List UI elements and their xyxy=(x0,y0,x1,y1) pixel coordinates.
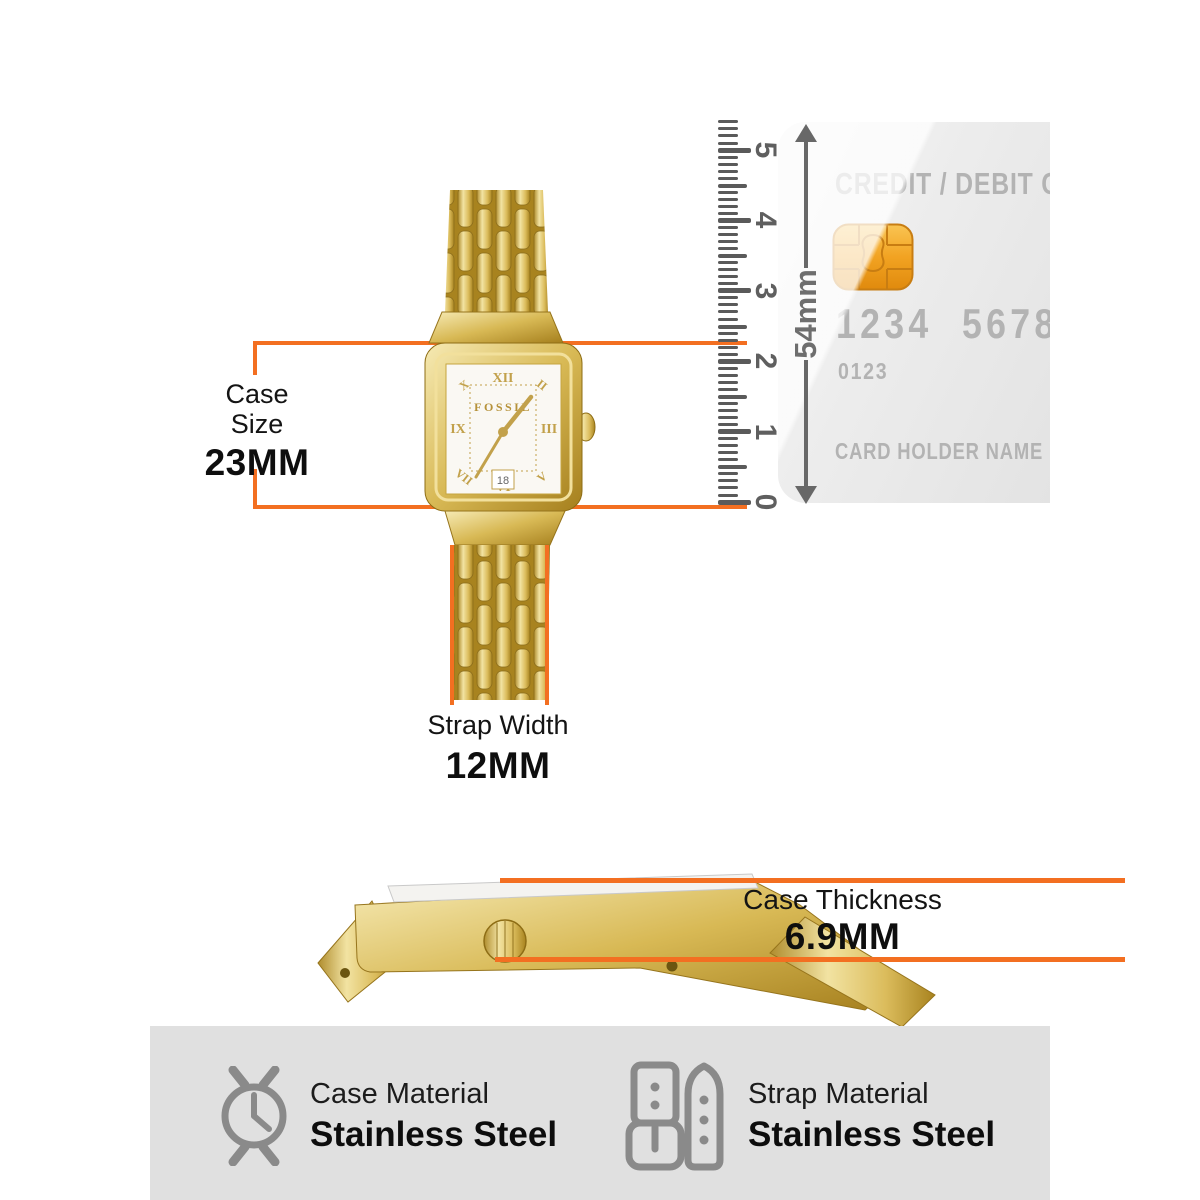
ruler-number: 4 xyxy=(749,203,781,237)
ruler-tick xyxy=(718,494,738,497)
case-size-annotation: Case Size 23MM xyxy=(167,379,347,484)
case-thickness-value: 6.9MM xyxy=(700,916,985,958)
ruler-tick xyxy=(718,170,738,173)
ruler-tick xyxy=(718,268,738,271)
end-link-top xyxy=(429,312,563,343)
strap-width-right-line xyxy=(545,545,549,705)
date-value: 18 xyxy=(497,475,509,487)
case-thickness-top-line xyxy=(500,878,1125,883)
strap-width-label: Strap Width xyxy=(398,710,598,740)
ruler-tick xyxy=(718,423,738,426)
ruler-tick xyxy=(718,288,751,293)
ruler-number: 3 xyxy=(749,274,781,308)
ruler-tick xyxy=(718,310,738,313)
case-material-text: Case Material Stainless Steel xyxy=(310,1078,557,1155)
arrow-head-down xyxy=(795,486,817,504)
ruler-tick xyxy=(718,395,747,399)
ruler-tick xyxy=(718,332,738,335)
ruler-tick xyxy=(718,303,738,306)
ruler-number: 1 xyxy=(749,415,781,449)
card-small-number: 0123 xyxy=(838,358,888,385)
ruler-tick xyxy=(718,416,738,419)
arrow-line-upper xyxy=(804,140,808,268)
ruler-tick xyxy=(718,205,738,208)
ruler-tick xyxy=(718,367,738,370)
case-size-bracket-upper xyxy=(253,341,257,375)
bracelet-bottom xyxy=(450,545,550,700)
ruler-tick xyxy=(718,233,738,236)
strap-width-value: 12MM xyxy=(398,745,598,787)
ruler-tick xyxy=(718,318,738,321)
ruler-tick xyxy=(718,353,738,356)
case-thickness-label: Case Thickness xyxy=(700,884,985,915)
strap-icon xyxy=(622,1060,734,1172)
strap-width-annotation: Strap Width 12MM xyxy=(398,710,598,787)
ruler-tick xyxy=(718,142,738,145)
ruler-tick xyxy=(718,226,738,229)
ruler-tick xyxy=(718,409,738,412)
ruler-tick xyxy=(718,212,738,215)
ruler-tick xyxy=(718,465,747,469)
strap-material-value: Stainless Steel xyxy=(748,1115,995,1155)
strap-material-text: Strap Material Stainless Steel xyxy=(748,1078,995,1155)
ruler-tick xyxy=(718,275,738,278)
ruler-tick xyxy=(718,472,738,475)
ruler-tick xyxy=(718,374,738,377)
product-dimension-infographic: Case Size 23MM 012345 CREDIT / DEBIT CAR… xyxy=(0,0,1200,1200)
end-link-bottom xyxy=(445,511,565,545)
ruler-tick xyxy=(718,127,738,130)
ruler-tick xyxy=(718,198,738,201)
card-number-right: 5678 xyxy=(962,300,1050,348)
ruler-tick xyxy=(718,163,738,166)
card-number-left: 1234 xyxy=(836,300,932,348)
ruler-tick xyxy=(718,346,738,349)
case-material-value: Stainless Steel xyxy=(310,1115,557,1155)
ruler-tick xyxy=(718,444,738,447)
ruler-tick xyxy=(718,240,738,243)
ruler-tick xyxy=(718,156,738,159)
ruler-tick xyxy=(718,177,738,180)
strap-material-label: Strap Material xyxy=(748,1078,995,1111)
ruler-tick xyxy=(718,500,751,505)
ruler-tick xyxy=(718,191,738,194)
ruler-tick xyxy=(718,120,738,123)
ruler-tick xyxy=(718,402,738,405)
case-size-label: Case Size xyxy=(167,379,347,439)
strap-width-left-line xyxy=(450,545,454,705)
materials-panel: Case Material Stainless Steel Strap Mate… xyxy=(150,1026,1050,1200)
numeral-12: XII xyxy=(492,371,513,386)
case-thickness-annotation: Case Thickness 6.9MM xyxy=(700,884,985,958)
numeral-9: IX xyxy=(450,422,466,437)
ruler-tick xyxy=(718,451,738,454)
ruler-number: 0 xyxy=(749,485,781,519)
ruler-tick xyxy=(718,148,751,153)
numeral-3: III xyxy=(541,422,557,437)
ruler-tick xyxy=(718,381,738,384)
ruler-tick xyxy=(718,134,738,137)
ruler-tick xyxy=(718,184,747,188)
side-screw-right xyxy=(667,961,678,972)
arrow-line-lower xyxy=(804,360,808,488)
ruler-tick xyxy=(718,437,738,440)
side-screw-left xyxy=(340,968,350,978)
bracelet-top xyxy=(445,190,548,312)
ruler-tick xyxy=(718,458,738,461)
card-holder-name: CARD HOLDER NAME xyxy=(835,438,1043,465)
case-material-label: Case Material xyxy=(310,1078,557,1111)
ruler-tick xyxy=(718,247,738,250)
card-title: CREDIT / DEBIT CARD xyxy=(835,166,1050,202)
ruler-number: 2 xyxy=(749,344,781,378)
card-chip-icon xyxy=(832,223,914,291)
ruler-tick xyxy=(718,359,751,364)
ruler-tick xyxy=(718,261,738,264)
watch-case-icon xyxy=(212,1066,296,1166)
ruler-tick xyxy=(718,296,738,299)
watch-front-view: XII VI III IX X II VII V FOSSIL 18 xyxy=(380,185,630,715)
ruler-tick xyxy=(718,218,751,223)
ruler-tick xyxy=(718,282,738,285)
case-size-value: 23MM xyxy=(167,442,347,484)
ruler-tick xyxy=(718,479,738,482)
ruler-tick xyxy=(718,486,738,489)
ruler-tick xyxy=(718,429,751,434)
ruler-tick xyxy=(718,388,738,391)
ruler-tick xyxy=(718,325,747,329)
ruler-tick xyxy=(718,254,747,258)
ruler-number: 5 xyxy=(749,133,781,167)
card-height-label: 54mm xyxy=(788,269,824,359)
